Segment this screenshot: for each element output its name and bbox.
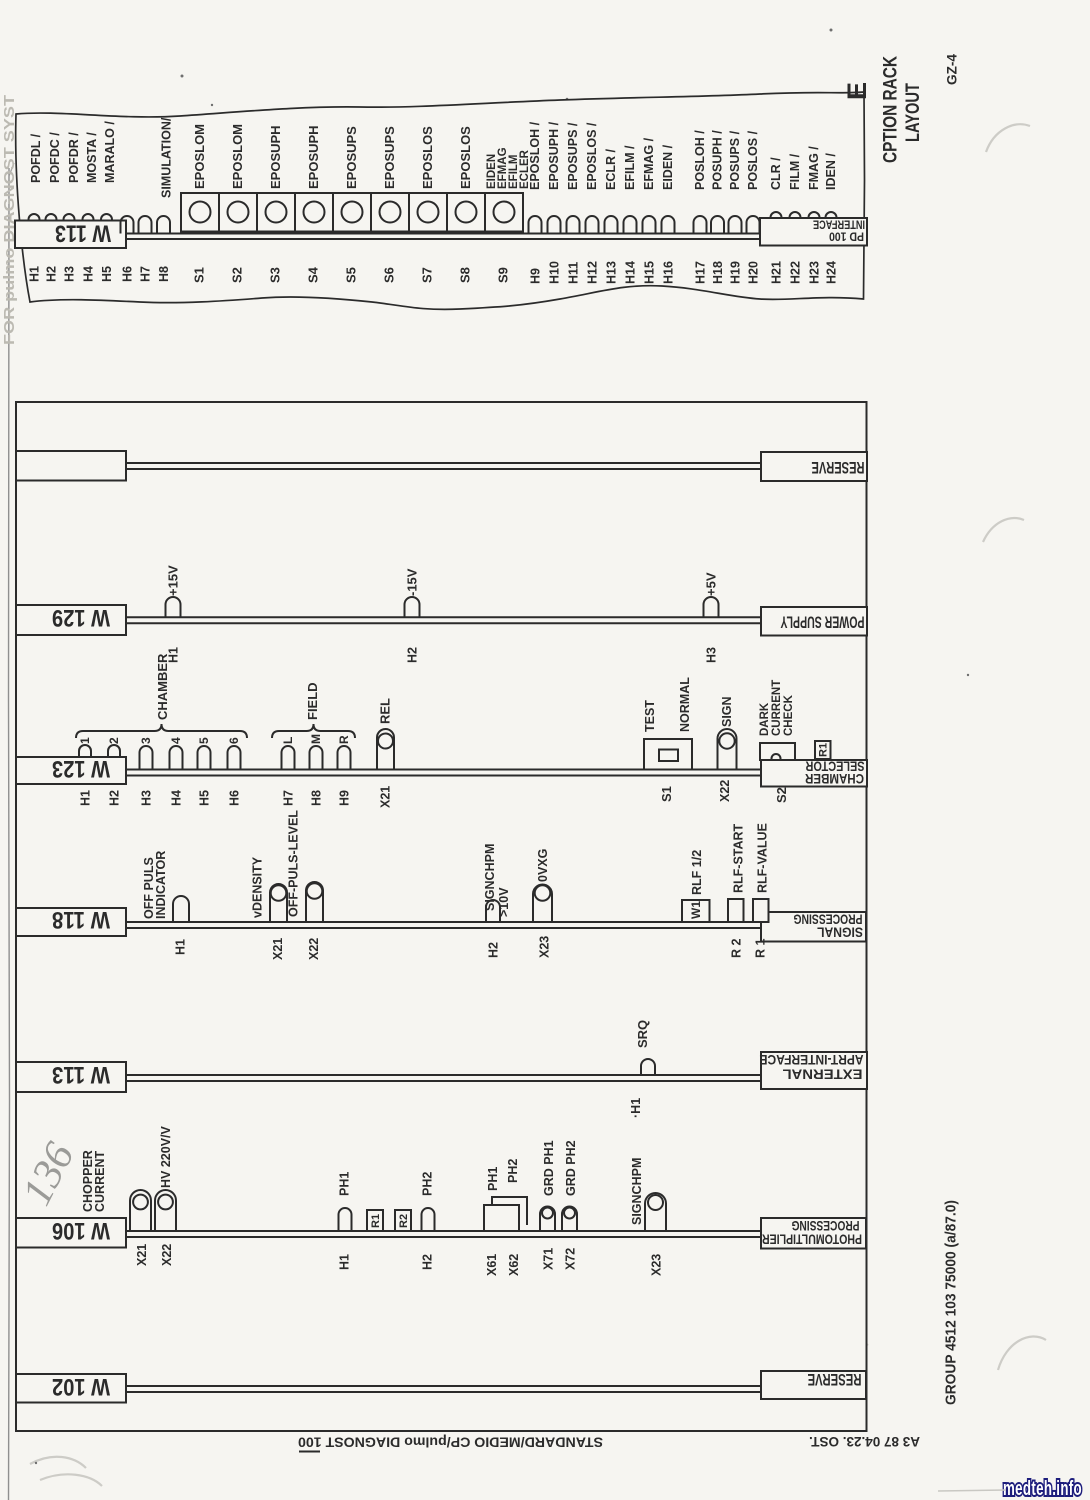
svg-text:H9: H9 [338,790,352,806]
svg-text:POFDL /: POFDL / [29,133,43,183]
svg-text:W 129: W 129 [52,604,110,631]
svg-text:X21: X21 [271,938,285,960]
svg-text:X22: X22 [307,938,321,960]
svg-text:H17: H17 [694,261,708,284]
svg-text:H12: H12 [586,261,600,284]
svg-text:EPOSLOH /: EPOSLOH / [528,121,542,190]
svg-text:EFILM /: EFILM / [623,145,637,190]
svg-text:EPOSUPH: EPOSUPH [306,125,321,189]
svg-text:H1: H1 [79,790,93,806]
svg-text:H2: H2 [406,647,420,663]
svg-text:+15V: +15V [166,565,181,596]
svg-text:ECLR /: ECLR / [604,149,618,191]
svg-text:H2: H2 [45,266,59,282]
svg-text:0VXG: 0VXG [536,849,550,882]
svg-text:-15V: -15V [405,568,420,596]
svg-text:·H1: ·H1 [629,1098,643,1118]
svg-text:GZ-4: GZ-4 [944,54,960,85]
svg-text:H5: H5 [100,266,114,282]
svg-text:H9: H9 [529,268,543,284]
svg-text:EPOSUPH /: EPOSUPH / [547,121,561,190]
svg-text:H14: H14 [624,261,638,284]
svg-text:E: E [842,82,872,100]
svg-text:H21: H21 [770,261,784,284]
svg-text:APRT-INTERFACE: APRT-INTERFACE [760,1052,864,1067]
svg-text:H1: H1 [338,1254,352,1270]
svg-text:2: 2 [107,737,121,744]
svg-text:PD 100: PD 100 [829,230,864,242]
svg-text:SIGN: SIGN [720,696,734,727]
svg-text:IDEN /: IDEN / [824,153,838,190]
svg-text:X72: X72 [564,1248,578,1270]
svg-text:GRD PH2: GRD PH2 [564,1140,578,1196]
svg-text:H6: H6 [228,790,242,806]
svg-text:H7: H7 [139,266,153,282]
svg-text:S2: S2 [230,267,245,283]
svg-text:POSUPS /: POSUPS / [728,130,742,190]
svg-text:S7: S7 [420,267,435,283]
svg-text:SIGNCHPM: SIGNCHPM [630,1158,644,1225]
svg-text:S5: S5 [344,267,359,283]
svg-text:RLF 1/2: RLF 1/2 [690,850,704,895]
svg-text:OFF-PULS-LEVEL: OFF-PULS-LEVEL [287,810,301,917]
svg-text:EPOSLOS: EPOSLOS [458,126,473,189]
svg-text:RLF-START: RLF-START [732,823,746,893]
svg-text:CURRENT: CURRENT [771,680,783,736]
svg-text:H2: H2 [421,1254,435,1270]
svg-text:TEST: TEST [643,700,657,732]
svg-text:H3: H3 [63,266,77,282]
svg-text:H18: H18 [711,261,725,284]
svg-text:NORMAL: NORMAL [678,677,692,732]
svg-text:M: M [309,734,323,744]
svg-text:H4: H4 [82,266,96,282]
svg-text:S9: S9 [496,267,511,283]
svg-text:L: L [281,737,295,744]
svg-text:RESERVE: RESERVE [808,1370,862,1389]
svg-text:W 106: W 106 [52,1217,110,1244]
svg-text:EPOSUPS /: EPOSUPS / [566,122,580,190]
svg-text:S2: S2 [774,787,789,803]
svg-text:X62: X62 [507,1254,521,1276]
svg-text:S1: S1 [659,786,674,802]
svg-text:S1: S1 [192,267,207,283]
svg-text:EPOSLOS /: EPOSLOS / [585,122,599,190]
svg-text:1: 1 [78,737,92,744]
svg-text:POFDC /: POFDC / [48,132,62,183]
svg-text:H1: H1 [28,266,42,282]
svg-text:SRQ: SRQ [635,1020,650,1048]
svg-text:W 113: W 113 [52,1061,110,1088]
svg-text:GROUP 4512 103 75000 (a/87.0): GROUP 4512 103 75000 (a/87.0) [944,1200,960,1405]
svg-text:H23: H23 [808,261,822,284]
svg-text:A3 87 04.23. OST.: A3 87 04.23. OST. [809,1434,920,1449]
svg-text:H19: H19 [729,261,743,284]
svg-text:H20: H20 [747,261,761,284]
svg-text:EPOSUPS: EPOSUPS [344,126,359,189]
svg-text:S8: S8 [458,267,473,283]
svg-text:DARK: DARK [759,702,771,736]
svg-text:POFDR /: POFDR / [67,132,81,183]
svg-text:EPOSLOM: EPOSLOM [192,124,207,189]
svg-text:POSLOS /: POSLOS / [746,130,760,190]
svg-text:H8: H8 [157,266,171,282]
svg-text:H3: H3 [140,790,154,806]
svg-text:S6: S6 [382,267,397,283]
svg-text:W 118: W 118 [52,906,110,933]
svg-text:CHECK: CHECK [783,694,795,736]
svg-text:H4: H4 [170,790,184,806]
svg-text:PH2: PH2 [506,1159,520,1183]
svg-text:W1: W1 [689,901,703,919]
svg-text:R1: R1 [818,743,830,757]
svg-text:MARALO /: MARALO / [103,121,117,183]
svg-text:X22: X22 [160,1244,174,1266]
svg-text:X71: X71 [542,1248,556,1270]
svg-text:LAYOUT: LAYOUT [902,83,924,142]
svg-text:PH2: PH2 [421,1172,435,1196]
svg-text:EPOSLOM: EPOSLOM [230,124,245,189]
svg-text:H3: H3 [705,647,719,663]
svg-text:PH1: PH1 [486,1167,500,1191]
svg-text:REL: REL [378,698,393,724]
svg-text:H11: H11 [567,262,581,284]
svg-text:X22: X22 [718,780,732,802]
svg-text:H7: H7 [282,790,296,806]
svg-text:W 102: W 102 [52,1373,110,1400]
svg-text:W 113: W 113 [55,220,111,247]
svg-text:EPOSUPH: EPOSUPH [268,125,283,189]
svg-text:H24: H24 [825,261,839,284]
svg-text:INDICATOR: INDICATOR [154,851,168,919]
svg-text:CHAMBER: CHAMBER [805,771,864,787]
svg-text:RESERVE: RESERVE [812,458,865,477]
svg-text:X23: X23 [538,936,552,958]
svg-text:H2: H2 [487,942,501,958]
svg-text:PH1: PH1 [338,1172,352,1196]
svg-text:POSLOH /: POSLOH / [693,130,707,190]
svg-text:R 2: R 2 [730,939,744,959]
svg-text:SIMULATION/: SIMULATION/ [160,117,174,198]
svg-text:INTERFACE: INTERFACE [813,218,865,230]
svg-text:>10V: >10V [497,887,511,917]
svg-text:X21: X21 [135,1244,149,1266]
svg-text:S4: S4 [306,266,321,283]
svg-text:SIGNAL: SIGNAL [817,925,863,941]
svg-text:H15: H15 [643,261,657,284]
svg-text:CHAMBER: CHAMBER [155,653,170,720]
svg-text:CPTION RACK: CPTION RACK [880,56,902,163]
svg-text:SIGNCHPM: SIGNCHPM [483,844,497,911]
svg-text:EXTERNAL: EXTERNAL [783,1067,863,1082]
svg-text:CLR /: CLR / [769,157,783,190]
svg-text:CURRENT: CURRENT [93,1151,107,1212]
svg-text:STANDARD/MEDIO CP/pulmo DIAGNO: STANDARD/MEDIO CP/pulmo DIAGNOST 100 [298,1435,603,1451]
svg-text:GRD PH1: GRD PH1 [542,1140,556,1196]
svg-text:H5: H5 [198,790,212,806]
svg-text:4: 4 [169,737,183,744]
svg-text:EIDEN /: EIDEN / [661,144,675,190]
svg-text:vDENSITY: vDENSITY [251,856,265,918]
svg-text:FIELD: FIELD [305,682,320,720]
svg-text:R 1: R 1 [754,939,768,959]
svg-text:FMAG /: FMAG / [807,146,821,190]
svg-text:POSUPH /: POSUPH / [711,130,725,190]
svg-text:3: 3 [139,737,153,744]
svg-text:H6: H6 [121,266,135,282]
svg-text:H1: H1 [174,939,188,955]
svg-text:H13: H13 [605,261,619,284]
svg-text:HV 220V/V: HV 220V/V [159,1125,173,1188]
svg-text:PROCESSING: PROCESSING [792,1218,860,1233]
svg-text:R: R [337,735,351,744]
svg-text:EPOSLOS: EPOSLOS [420,126,435,189]
svg-text:H22: H22 [789,261,803,284]
svg-text:5: 5 [197,737,211,744]
svg-text:EPOSUPS: EPOSUPS [382,126,397,189]
svg-text:H10: H10 [548,261,562,284]
svg-text:PHOTOMULTIPLIER: PHOTOMULTIPLIER [762,1232,862,1247]
svg-text:RLF-VALUE: RLF-VALUE [756,823,770,893]
svg-text:+5V: +5V [704,572,719,596]
svg-text:EFMAG /: EFMAG / [642,137,656,190]
svg-text:H8: H8 [310,790,324,806]
svg-text:W 123: W 123 [52,755,110,782]
svg-text:X21: X21 [379,786,393,808]
svg-text:S3: S3 [268,267,283,283]
svg-text:FILM /: FILM / [788,153,802,190]
svg-text:6: 6 [227,737,241,744]
svg-text:R2: R2 [398,1214,410,1228]
svg-text:H2: H2 [108,790,122,806]
svg-text:X61: X61 [485,1254,499,1276]
svg-text:H16: H16 [662,261,676,284]
svg-text:X23: X23 [650,1254,664,1276]
svg-text:R1: R1 [370,1214,382,1228]
svg-text:POWER SUPPLY: POWER SUPPLY [780,613,864,632]
svg-text:medteh.info: medteh.info [1003,1478,1082,1500]
svg-text:MOSTA /: MOSTA / [85,132,99,183]
